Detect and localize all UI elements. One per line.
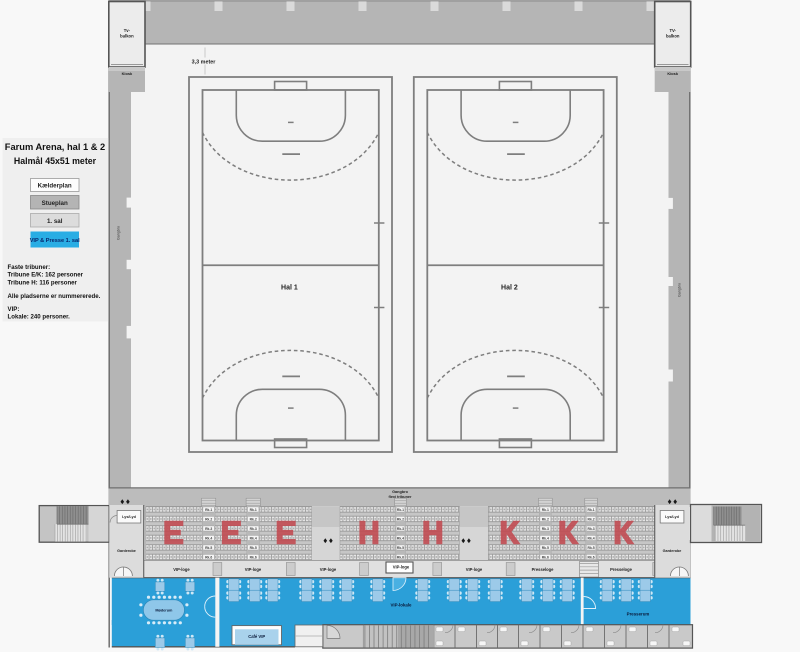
svg-text:Rk.4: Rk.4	[542, 536, 549, 540]
svg-text:Gangbro: Gangbro	[392, 490, 409, 494]
svg-text:Café VIP: Café VIP	[248, 634, 265, 639]
svg-text:Rk.3: Rk.3	[588, 527, 595, 531]
svg-text:Rk.5: Rk.5	[588, 546, 595, 550]
svg-text:Rk.3: Rk.3	[542, 527, 549, 531]
svg-text:Rk.2: Rk.2	[588, 517, 595, 521]
svg-text:VIP-loge: VIP-loge	[466, 567, 483, 572]
svg-text:Rk.3: Rk.3	[250, 527, 257, 531]
svg-text:Kælderplan: Kælderplan	[38, 183, 72, 190]
svg-text:Lokale: 240 personer.: Lokale: 240 personer.	[8, 314, 71, 321]
svg-text:Halmål 45x51 meter: Halmål 45x51 meter	[14, 156, 97, 166]
svg-text:Kiosk: Kiosk	[122, 71, 133, 76]
svg-text:Faste tribuner:: Faste tribuner:	[8, 264, 51, 271]
svg-text:Rk.1: Rk.1	[250, 508, 257, 512]
svg-text:Møderum: Møderum	[155, 609, 173, 613]
svg-text:Rk.5: Rk.5	[397, 546, 404, 550]
svg-text:Presserum: Presserum	[627, 612, 650, 617]
svg-text:Tv-: Tv-	[124, 28, 131, 33]
svg-text:Presseloge: Presseloge	[610, 567, 633, 572]
svg-text:balkon: balkon	[666, 34, 680, 39]
svg-text:Rk.1: Rk.1	[588, 508, 595, 512]
svg-text:Rk.6: Rk.6	[397, 555, 404, 559]
svg-text:VIP-loge: VIP-loge	[393, 565, 410, 570]
svg-text:VIP-loge: VIP-loge	[320, 567, 337, 572]
svg-text:TV-: TV-	[669, 28, 676, 33]
svg-text:Rk.4: Rk.4	[205, 536, 212, 540]
svg-text:Rk.4: Rk.4	[397, 536, 404, 540]
svg-text:Rk.5: Rk.5	[250, 546, 257, 550]
svg-text:Rk.5: Rk.5	[205, 546, 212, 550]
svg-text:Garderobe: Garderobe	[663, 549, 682, 553]
svg-text:Rk.2: Rk.2	[397, 517, 404, 521]
svg-text:Farum Arena, hal 1 & 2: Farum Arena, hal 1 & 2	[5, 142, 105, 152]
svg-text:Lys/Lyd: Lys/Lyd	[665, 515, 679, 519]
svg-text:Hal 2: Hal 2	[501, 285, 518, 292]
svg-text:Rk.1: Rk.1	[397, 508, 404, 512]
svg-text:Rk.1: Rk.1	[205, 508, 212, 512]
svg-text:Presseloge: Presseloge	[532, 567, 555, 572]
svg-text:Rk.6: Rk.6	[542, 555, 549, 559]
svg-text:Rk.6: Rk.6	[205, 555, 212, 559]
svg-text:3,3 meter: 3,3 meter	[192, 59, 217, 65]
svg-text:Rk.5: Rk.5	[542, 546, 549, 550]
svg-text:Rk.4: Rk.4	[588, 536, 595, 540]
svg-text:Rk.2: Rk.2	[250, 517, 257, 521]
svg-text:Rk.3: Rk.3	[205, 527, 212, 531]
svg-text:VIP-lokale: VIP-lokale	[391, 603, 413, 608]
svg-text:Rk.2: Rk.2	[542, 517, 549, 521]
svg-text:VIP:: VIP:	[8, 306, 20, 313]
svg-text:1. sal: 1. sal	[47, 218, 63, 225]
svg-text:Rk.4: Rk.4	[250, 536, 257, 540]
svg-text:Rk.1: Rk.1	[542, 508, 549, 512]
svg-text:Kiosk: Kiosk	[667, 71, 678, 76]
svg-text:Garderobe: Garderobe	[117, 549, 136, 553]
svg-text:Rk.3: Rk.3	[397, 527, 404, 531]
svg-text:Alle pladserne er nummererede.: Alle pladserne er nummererede.	[8, 293, 101, 300]
svg-text:Stueplan: Stueplan	[42, 200, 68, 207]
svg-text:VIP-loge: VIP-loge	[245, 567, 262, 572]
svg-text:Tribune E/K: 162 personer: Tribune E/K: 162 personer	[8, 272, 84, 279]
svg-text:balkon: balkon	[120, 34, 134, 39]
svg-text:VIP-loge: VIP-loge	[173, 567, 190, 572]
svg-text:Rk.6: Rk.6	[588, 555, 595, 559]
svg-text:Lys/Lyd: Lys/Lyd	[122, 515, 136, 519]
svg-text:Rk.6: Rk.6	[250, 555, 257, 559]
svg-text:Tribune H: 116 personer: Tribune H: 116 personer	[8, 279, 78, 286]
svg-text:VIP & Presse 1. sal: VIP & Presse 1. sal	[30, 238, 80, 244]
svg-text:Rk.2: Rk.2	[205, 517, 212, 521]
svg-text:Gangbro: Gangbro	[678, 283, 682, 297]
svg-text:Gangbro: Gangbro	[117, 226, 121, 240]
svg-text:Hal 1: Hal 1	[281, 285, 298, 292]
